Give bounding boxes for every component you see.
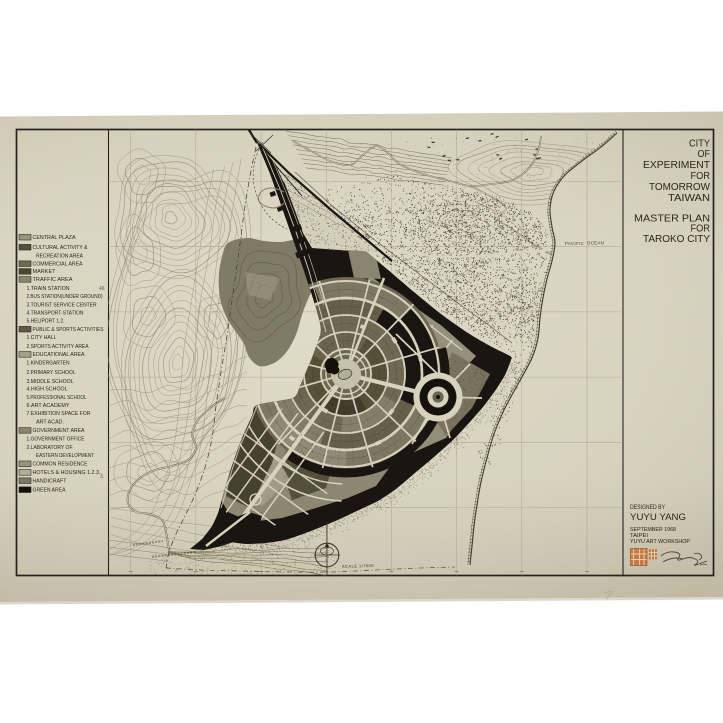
svg-text:2.BUS STATION(UNDER GROUND): 2.BUS STATION(UNDER GROUND) bbox=[27, 294, 103, 300]
svg-text:HOTELS & HOUSING 1.2.3.: HOTELS & HOUSING 1.2.3. bbox=[33, 470, 101, 476]
svg-text:3.: 3. bbox=[100, 474, 104, 480]
svg-text:PUBLIC & SPORTS ACTIVITIES: PUBLIC & SPORTS ACTIVITIES bbox=[33, 327, 104, 333]
svg-text:HANDICRAFT: HANDICRAFT bbox=[33, 479, 68, 485]
svg-text:OF: OF bbox=[698, 149, 711, 160]
svg-text:RECREATION AREA: RECREATION AREA bbox=[36, 253, 83, 259]
svg-text:GREEN AREA: GREEN AREA bbox=[33, 488, 66, 494]
svg-text:7.EXHIBITION SPACE FOR: 7.EXHIBITION SPACE FOR bbox=[27, 411, 91, 417]
svg-text:5.HELIPORT 1.2.: 5.HELIPORT 1.2. bbox=[27, 319, 65, 325]
svg-text:COMMERCIAL AREA: COMMERCIAL AREA bbox=[33, 262, 83, 268]
svg-text:TAIWAN: TAIWAN bbox=[668, 193, 710, 204]
svg-text:2.PRIMARY SCHOOL: 2.PRIMARY SCHOOL bbox=[27, 370, 76, 376]
svg-text:OCEAN: OCEAN bbox=[587, 241, 604, 246]
svg-text:1.CITY HALL: 1.CITY HALL bbox=[27, 335, 57, 341]
svg-text:YUYU YANG: YUYU YANG bbox=[630, 512, 686, 523]
svg-text:46: 46 bbox=[99, 286, 105, 292]
svg-text:5.PROFESSIONAL SCHOOL: 5.PROFESSIONAL SCHOOL bbox=[27, 395, 87, 401]
svg-text:EXPERIMENT: EXPERIMENT bbox=[643, 160, 710, 171]
svg-text:EASTERN DEVELOPMENT: EASTERN DEVELOPMENT bbox=[36, 453, 95, 459]
svg-text:1.GOVERNMENT OFFICE: 1.GOVERNMENT OFFICE bbox=[27, 436, 85, 442]
svg-text:EDUCATIONAL AREA: EDUCATIONAL AREA bbox=[33, 352, 85, 358]
svg-text:GOVERNMENT AREA: GOVERNMENT AREA bbox=[33, 428, 85, 434]
svg-text:TRAFFIC AREA: TRAFFIC AREA bbox=[33, 277, 73, 283]
svg-text:FOR: FOR bbox=[691, 224, 711, 235]
svg-text:1.KINDERGARTEN: 1.KINDERGARTEN bbox=[27, 361, 70, 367]
svg-text:DESIGNED BY: DESIGNED BY bbox=[630, 505, 665, 511]
svg-text:FOR: FOR bbox=[691, 171, 711, 182]
svg-text:YUYU ART WORKSHOP: YUYU ART WORKSHOP bbox=[630, 539, 690, 545]
svg-text:MARKET: MARKET bbox=[33, 269, 57, 275]
svg-text:4.HIGH SCHOOL: 4.HIGH SCHOOL bbox=[27, 387, 68, 393]
svg-text:CENTRAL PLAZA: CENTRAL PLAZA bbox=[33, 235, 76, 241]
svg-text:1.TRAIN STATION: 1.TRAIN STATION bbox=[27, 286, 70, 292]
svg-text:4.TRANSPORT-STATION: 4.TRANSPORT-STATION bbox=[27, 311, 84, 317]
svg-text:3.TOURIST SERVICE CENTER: 3.TOURIST SERVICE CENTER bbox=[27, 303, 97, 309]
svg-text:PACIFIC: PACIFIC bbox=[565, 241, 584, 246]
svg-text:2.SPORTS ACTIVITY AREA: 2.SPORTS ACTIVITY AREA bbox=[27, 344, 89, 350]
svg-text:3.MIDDLE SCHOOL: 3.MIDDLE SCHOOL bbox=[27, 379, 74, 385]
svg-text:TAROKO CITY: TAROKO CITY bbox=[643, 234, 710, 245]
svg-text:COMMON RESIDENCE: COMMON RESIDENCE bbox=[33, 462, 88, 468]
svg-text:CITY: CITY bbox=[689, 139, 710, 150]
svg-text:2.LABORATORY OF: 2.LABORATORY OF bbox=[27, 445, 74, 451]
svg-text:ART ACAD.: ART ACAD. bbox=[36, 420, 64, 426]
svg-text:CULTURAL ACTIVITY &: CULTURAL ACTIVITY & bbox=[33, 245, 88, 251]
svg-text:6.ART ACADEMY: 6.ART ACADEMY bbox=[27, 403, 70, 409]
svg-text:TOMORROW: TOMORROW bbox=[649, 182, 710, 193]
